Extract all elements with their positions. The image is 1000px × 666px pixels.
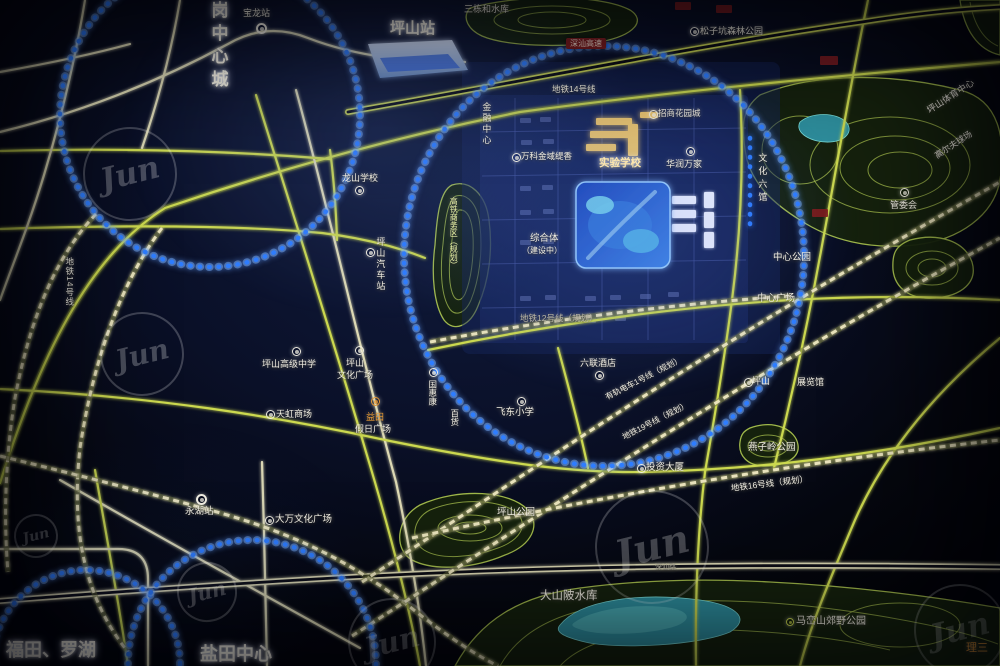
poi-marker-icon bbox=[266, 410, 275, 419]
vanke-jinyu-tixiang: 万科金域缇香 bbox=[521, 152, 572, 162]
poi-marker-icon bbox=[517, 397, 526, 406]
culture-plaza-line1: 坪山 bbox=[346, 358, 364, 368]
yanziling-park: 燕子岭公园 bbox=[748, 443, 796, 454]
maluanshan-country-park: 马峦山郊野公园 bbox=[796, 616, 866, 628]
metro-station-icon bbox=[196, 494, 207, 505]
poi-marker-icon bbox=[366, 248, 375, 257]
shiyan-school: 实验学校 bbox=[599, 157, 641, 169]
sandong-reservoir: 三栋和水库 bbox=[464, 4, 509, 14]
admin-committee: 管委会 bbox=[890, 200, 917, 210]
road-number-tag bbox=[820, 56, 838, 65]
road-number-tag bbox=[675, 2, 691, 10]
pingshan-station: 坪山站 bbox=[390, 20, 435, 37]
poi-marker-icon bbox=[690, 27, 699, 36]
complex-line1: 综合体 bbox=[530, 234, 559, 245]
pingshan-park: 坪山公园 bbox=[497, 508, 535, 519]
metro-line-14-left: 地铁14号线 bbox=[64, 257, 74, 306]
baolong-station: 宝龙站 bbox=[243, 8, 270, 18]
yitian-holiday-plaza: 假日广场 bbox=[355, 424, 391, 434]
illuminated-area-map-photo: .park{fill:var(--park_fill);stroke:var(-… bbox=[0, 0, 1000, 666]
poi-marker-icon bbox=[649, 110, 658, 119]
pingshan-exhibition-1: 坪山 bbox=[752, 376, 770, 386]
brand-logo-icon bbox=[371, 397, 380, 406]
poi-marker-icon bbox=[292, 347, 301, 356]
futian-luohu: 福田、罗湖 bbox=[6, 640, 96, 661]
poi-marker-icon bbox=[512, 153, 521, 162]
poi-marker-icon bbox=[429, 368, 438, 377]
yantian-center: 盐田中心 bbox=[200, 644, 272, 665]
dawan-culture-plaza: 大万文化广场 bbox=[275, 515, 332, 526]
culture-plaza-line2: 文化广场 bbox=[337, 370, 373, 380]
metro-line-16-planned: 地铁16号线（规划） bbox=[730, 475, 808, 494]
yonghu-station: 永湖站 bbox=[185, 507, 214, 518]
tianhong-mall: 天虹商场 bbox=[276, 409, 312, 419]
metro-station-icon bbox=[256, 23, 267, 34]
center-plaza: 中心广场 bbox=[757, 294, 795, 305]
poi-marker-icon bbox=[900, 188, 909, 197]
huarun-wanjia: 华润万家 bbox=[666, 159, 702, 169]
labels-layer: 龙岗中心城宝龙站坪山站三栋和水库松子坑森林公园深汕高速地铁14号线金融中心招商花… bbox=[0, 0, 1000, 666]
road-number-tag bbox=[812, 209, 828, 217]
pingshan-exhibition-2: 展览馆 bbox=[797, 377, 824, 387]
poi-marker-icon bbox=[637, 464, 646, 473]
baihuo: 百货 bbox=[449, 409, 459, 426]
pingshan-sports-center: 坪山体育中心 bbox=[925, 77, 976, 115]
metro-line-14-top: 地铁14号线 bbox=[552, 85, 595, 95]
liulian-hotel: 六联酒店 bbox=[580, 358, 616, 368]
poi-marker-icon bbox=[595, 371, 604, 380]
investment-tower: 投资大厦 bbox=[646, 463, 684, 474]
jinrong-center: 金融中心 bbox=[481, 102, 491, 146]
metro-line-19-planned: 地铁19号线（规划） bbox=[621, 400, 690, 441]
yitian-brand: 益田 bbox=[366, 412, 384, 422]
poi-marker-icon bbox=[744, 378, 753, 387]
zhaoshang-garden-city: 招商花园城 bbox=[658, 109, 701, 119]
dashanpi-reservoir: 大山陂水库 bbox=[540, 590, 598, 603]
center-park: 中心公园 bbox=[773, 253, 811, 264]
hsr-business-zone: 高铁商务区（规划） bbox=[449, 197, 458, 269]
complex-line2: （建设中） bbox=[522, 246, 562, 255]
poi-marker-icon bbox=[355, 346, 364, 355]
pingshan-bus-station: 坪山汽车站 bbox=[375, 237, 385, 292]
shenshan-road: 深汕路 bbox=[655, 564, 676, 572]
watermark-corner-text: 理三 bbox=[966, 642, 988, 655]
longshan-school: 龙山学校 bbox=[342, 173, 378, 183]
culture-six-halls: 文化六馆 bbox=[757, 153, 767, 205]
feidong-primary-school: 飞东小学 bbox=[496, 408, 534, 419]
metro-line-12: 地铁12号线（规划） bbox=[520, 314, 597, 324]
pingshan-senior-high: 坪山高级中学 bbox=[262, 359, 316, 369]
poi-marker-icon bbox=[686, 147, 695, 156]
guohuikang: 国惠康 bbox=[427, 380, 437, 406]
park-marker-icon bbox=[786, 618, 794, 626]
road-number-tag bbox=[716, 5, 732, 13]
golf-course: 高尔夫球场 bbox=[933, 130, 974, 161]
shenshan-expressway-tag: 深汕高速 bbox=[566, 38, 606, 49]
poi-marker-icon bbox=[265, 516, 274, 525]
longgang-center-city: 龙岗中心城 bbox=[208, 0, 228, 93]
poi-marker-icon bbox=[355, 186, 364, 195]
songzikeng-forest-park: 松子坑森林公园 bbox=[700, 26, 763, 36]
